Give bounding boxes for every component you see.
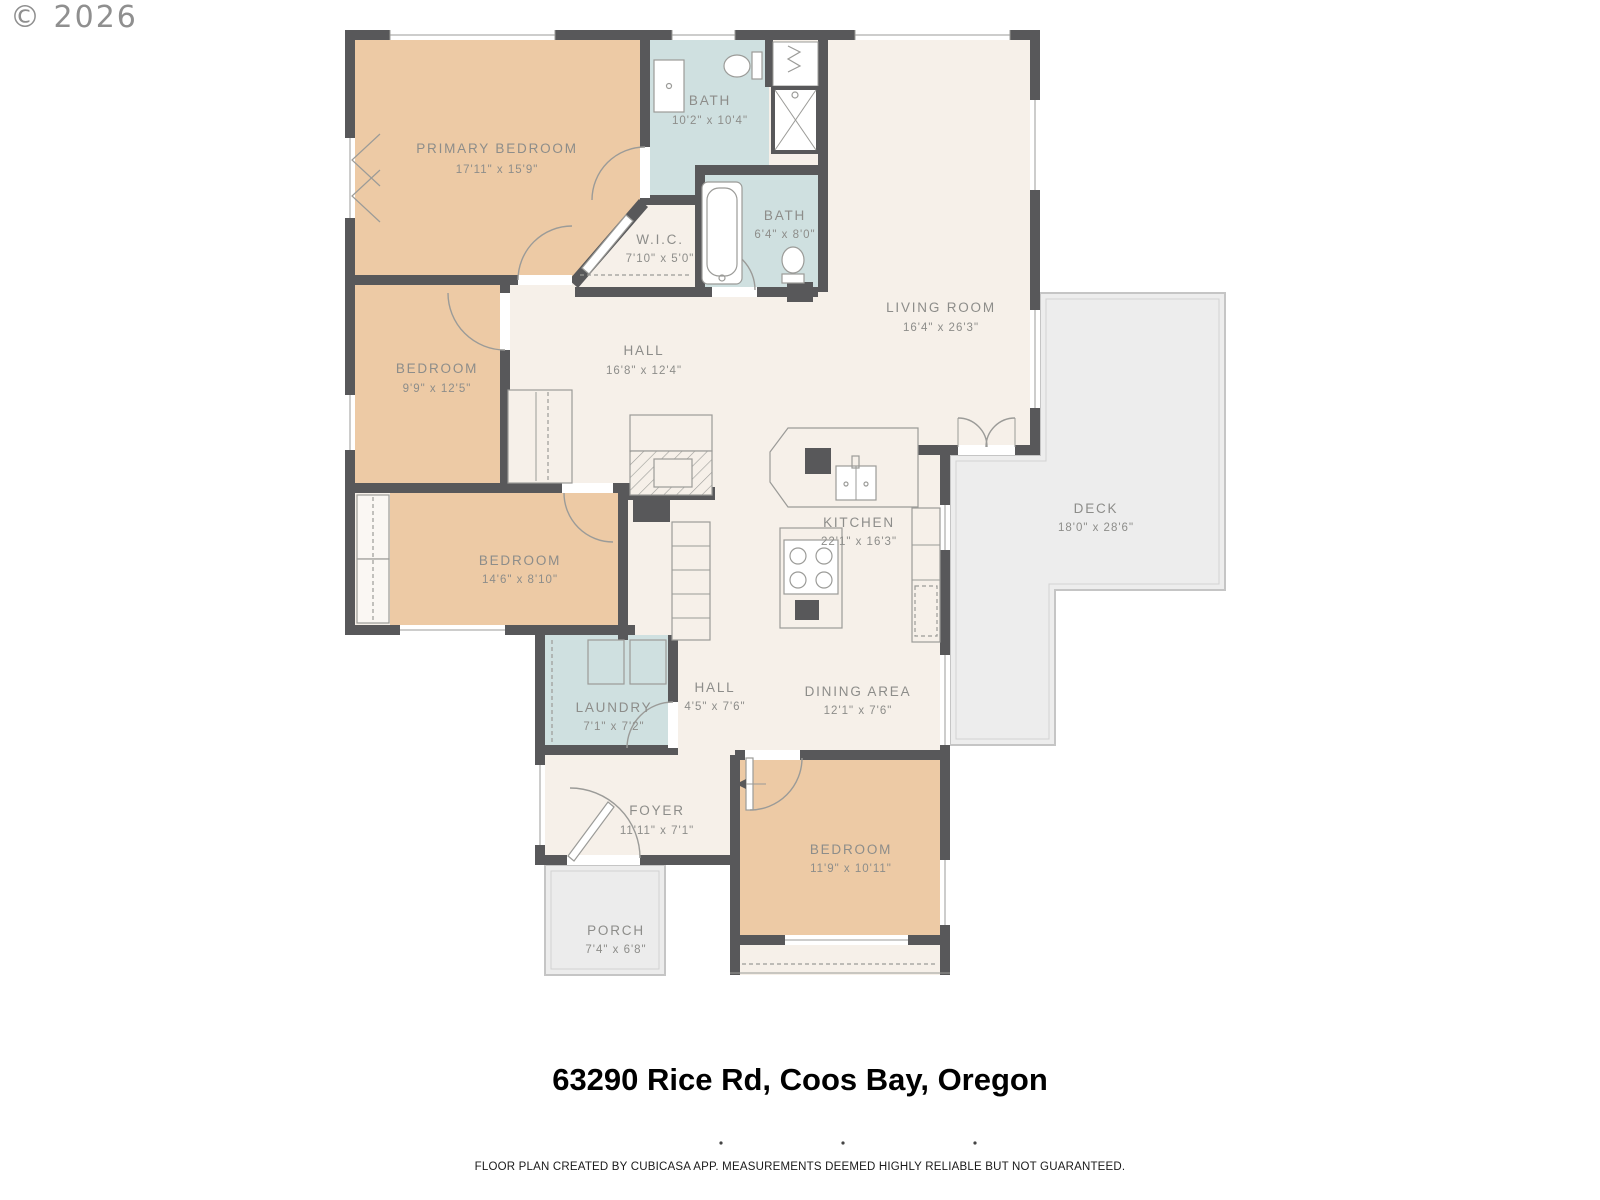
pantry-shelves [672,522,710,640]
counter-fixture [795,600,819,620]
wall-segment [575,287,712,297]
door-gap [712,287,757,297]
window [535,765,545,845]
door-gap [640,147,650,198]
room-label: FOYER [629,803,685,818]
room-dims: 11'9" x 10'11" [810,863,892,875]
room-label: DECK [1074,501,1119,516]
room-label: BATH [764,208,806,223]
room-dims: 16'4" x 26'3" [903,322,979,334]
bathtub-icon [702,182,742,284]
porch-area [545,865,665,975]
kitchen-counter [912,508,940,642]
room-label: HALL [695,680,736,695]
window [785,935,908,945]
wall-segment [345,30,355,635]
window [390,30,555,40]
wall-segment [505,625,635,635]
room-dims: 16'8" x 12'4" [606,365,682,377]
room-label: BATH [689,93,731,108]
room-dims: 9'9" x 12'5" [403,383,472,395]
door-gap [518,275,572,285]
toilet-icon [724,55,750,77]
window [345,395,355,450]
room-label: W.I.C. [636,232,684,247]
window [345,138,355,218]
window [1030,100,1040,190]
wall-segment [345,275,518,285]
room-dims: 17'11" x 15'9" [456,164,539,176]
window [855,30,1010,40]
wall-segment [940,455,950,505]
wall-segment [633,500,670,522]
window [940,655,950,745]
kitchen-island [770,428,918,507]
wall-segment [1015,445,1040,455]
wall-segment [800,750,950,760]
door-gap [668,702,678,748]
room-dims: 7'10" x 5'0" [626,253,695,265]
vanity-sink-icon [654,60,684,112]
room-dims: 18'0" x 28'6" [1058,522,1134,534]
floor-plan-drawing: PRIMARY BEDROOM 17'11" x 15'9" BATH 10'2… [0,0,1600,1200]
floor-plan-page: © 2026 [0,0,1600,1200]
toilet-icon [782,247,804,283]
wall-segment [345,483,562,493]
stove-icon [784,540,838,594]
window [1030,310,1040,408]
wall-segment [765,40,773,87]
dot [841,1141,844,1144]
hall-closet [508,390,572,483]
separator-dots [719,1141,976,1144]
wall-segment [538,745,673,755]
wall-segment [618,493,628,640]
room-dims: 10'2" x 10'4" [672,115,748,127]
address-title: 63290 Rice Rd, Coos Bay, Oregon [0,1062,1600,1098]
wall-segment [640,855,740,865]
room-dims: 14'6" x 8'10" [482,574,558,586]
wall-segment [818,30,828,292]
room-label: BEDROOM [479,553,561,568]
wall-segment [640,40,650,147]
toilet-tank-icon [752,52,762,79]
wall-segment [695,165,828,175]
room-dims: 22'1" x 16'3" [821,536,897,548]
wall-segment [940,925,950,975]
room-dims: 7'1" x 7'2" [583,721,644,733]
window [672,30,735,40]
window [940,505,950,550]
room-label: BEDROOM [810,842,892,857]
window [400,625,505,635]
wall-segment [668,748,678,755]
room-dims: 12'1" x 7'6" [824,705,893,717]
wall-segment [535,855,567,865]
room-dims: 4'5" x 7'6" [684,701,745,713]
door-gap [562,483,613,493]
primary-bedroom-floor [355,40,640,280]
room-dims: 6'4" x 8'0" [754,229,815,241]
dot [973,1141,976,1144]
wardrobe [357,495,389,623]
room-label: HALL [624,343,665,358]
room-dims: 11'11" x 7'1" [620,825,694,837]
porch-outline [545,865,665,975]
wall-segment [668,635,678,702]
wall-segment [940,550,950,655]
room-label: KITCHEN [823,515,895,530]
room-label: DINING AREA [805,684,912,699]
disclaimer-text: FLOOR PLAN CREATED BY CUBICASA APP. MEAS… [0,1161,1600,1173]
wall-segment [940,745,950,860]
front-closet-strip [740,945,940,973]
wall-segment [735,935,785,945]
door-gap [500,293,510,350]
room-dims: 7'4" x 6'8" [585,944,646,956]
dot [719,1141,722,1144]
room-label: BEDROOM [396,361,478,376]
room-label: PRIMARY BEDROOM [416,141,578,156]
room-label: LIVING ROOM [886,300,996,315]
room-label: LAUNDRY [576,700,653,715]
wall-segment [908,935,950,945]
island-fixture [805,448,831,474]
room-label: PORCH [587,923,645,938]
wall-pillar [787,282,813,302]
window [940,860,950,925]
wall-segment [345,625,400,635]
shower-icon [773,88,818,152]
